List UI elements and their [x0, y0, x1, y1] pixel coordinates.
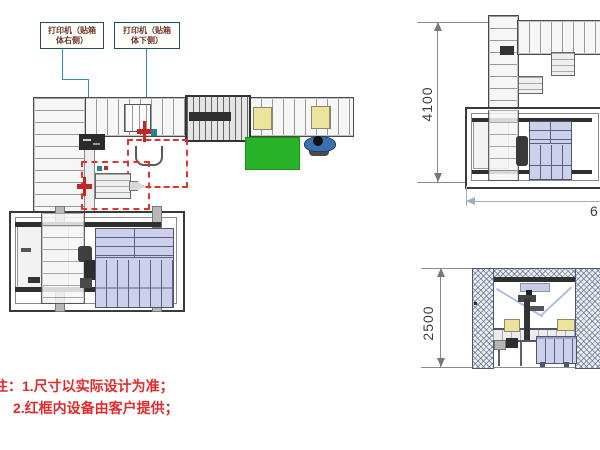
dimension-label-2500: 2500	[420, 293, 436, 353]
dimension-arrow	[466, 197, 475, 205]
pallet-stack-area	[95, 228, 174, 308]
cabinet-detail	[28, 277, 40, 283]
carton-on-corner-transfer	[79, 134, 105, 150]
callout-line: 体右侧）	[41, 36, 103, 46]
pallet-load-elevation	[536, 336, 577, 364]
callout-printer-bottom-side: 打印机（贴箱 体下侧）	[114, 22, 180, 49]
callout-printer-right-side: 打印机（贴箱 体右侧）	[40, 22, 104, 49]
roller-conveyor-horizontal	[517, 20, 600, 55]
dimension-label-width-partial: 6	[590, 203, 598, 219]
note-line-1: 注：1.尺寸以实际设计为准；	[0, 376, 174, 396]
safety-fence-pillar-left	[472, 268, 494, 369]
cabinet-detail	[21, 248, 31, 252]
carton-box-elevation	[504, 319, 520, 332]
dimension-arrow	[437, 268, 445, 277]
operator-floor-mat	[245, 137, 300, 170]
hanging-device	[551, 52, 575, 76]
robot-arm	[530, 306, 544, 311]
dimension-arrow	[434, 22, 442, 31]
carton-highlight	[93, 143, 100, 145]
pallet-stack-area	[529, 121, 572, 180]
carton-box-elevation	[557, 319, 575, 331]
ground-line	[421, 367, 600, 368]
roller-conveyor-vertical	[33, 97, 86, 215]
gantry-carriage	[520, 283, 550, 292]
carton-highlight	[83, 139, 91, 141]
operator-head	[313, 136, 323, 146]
hopper-line	[496, 288, 543, 318]
printer-position-marker	[137, 121, 152, 142]
gantry-rail	[15, 222, 161, 227]
support-leg	[520, 342, 522, 366]
printer-sensor-mark	[151, 129, 157, 136]
callout-line: 打印机（贴箱	[41, 26, 103, 36]
conveyor-through-machine	[488, 110, 519, 181]
printer-body	[95, 173, 131, 199]
pallet-grid-upper	[530, 122, 571, 144]
dimension-arrow	[437, 358, 445, 367]
dimension-line-horizontal	[466, 201, 600, 202]
fence-latch	[474, 302, 477, 305]
pallet-grid-lower	[530, 145, 571, 179]
extension-line	[417, 22, 490, 23]
equipment-block	[494, 340, 506, 350]
pallet-foot	[564, 362, 569, 367]
extension-line	[417, 182, 466, 183]
dimension-label-4100: 4100	[419, 74, 435, 134]
robot-part	[80, 278, 92, 288]
leader-line	[62, 49, 63, 80]
hanging-device	[518, 76, 543, 94]
conveyor-device	[500, 46, 514, 55]
pallet-foot	[540, 362, 545, 367]
dimension-arrow	[434, 173, 442, 182]
note-line-2: 2.红框内设备由客户提供；	[13, 398, 179, 418]
pallet-grid-upper	[96, 229, 173, 258]
machine-belt-band	[189, 112, 231, 121]
equipment-block	[506, 338, 518, 348]
callout-line: 打印机（贴箱	[115, 26, 179, 36]
printer-position-marker	[77, 177, 92, 196]
carton-box	[311, 106, 331, 129]
dimension-line-vertical	[440, 268, 441, 367]
layout-drawing-canvas: 打印机（贴箱 体右侧） 打印机（贴箱 体下侧）	[0, 0, 600, 450]
roller-conveyor-vertical	[488, 15, 519, 112]
dimension-line-vertical	[437, 22, 438, 182]
pallet-grid-lower	[96, 260, 173, 307]
printer-sensor-mark	[104, 166, 108, 170]
callout-line: 体下侧）	[115, 36, 179, 46]
carton-box	[253, 107, 273, 130]
leader-line	[62, 79, 89, 80]
safety-fence-panel-right	[575, 268, 600, 369]
case-sealer-machine	[185, 95, 251, 142]
printer-sensor-mark	[97, 166, 102, 171]
robot-gripper	[516, 136, 528, 166]
